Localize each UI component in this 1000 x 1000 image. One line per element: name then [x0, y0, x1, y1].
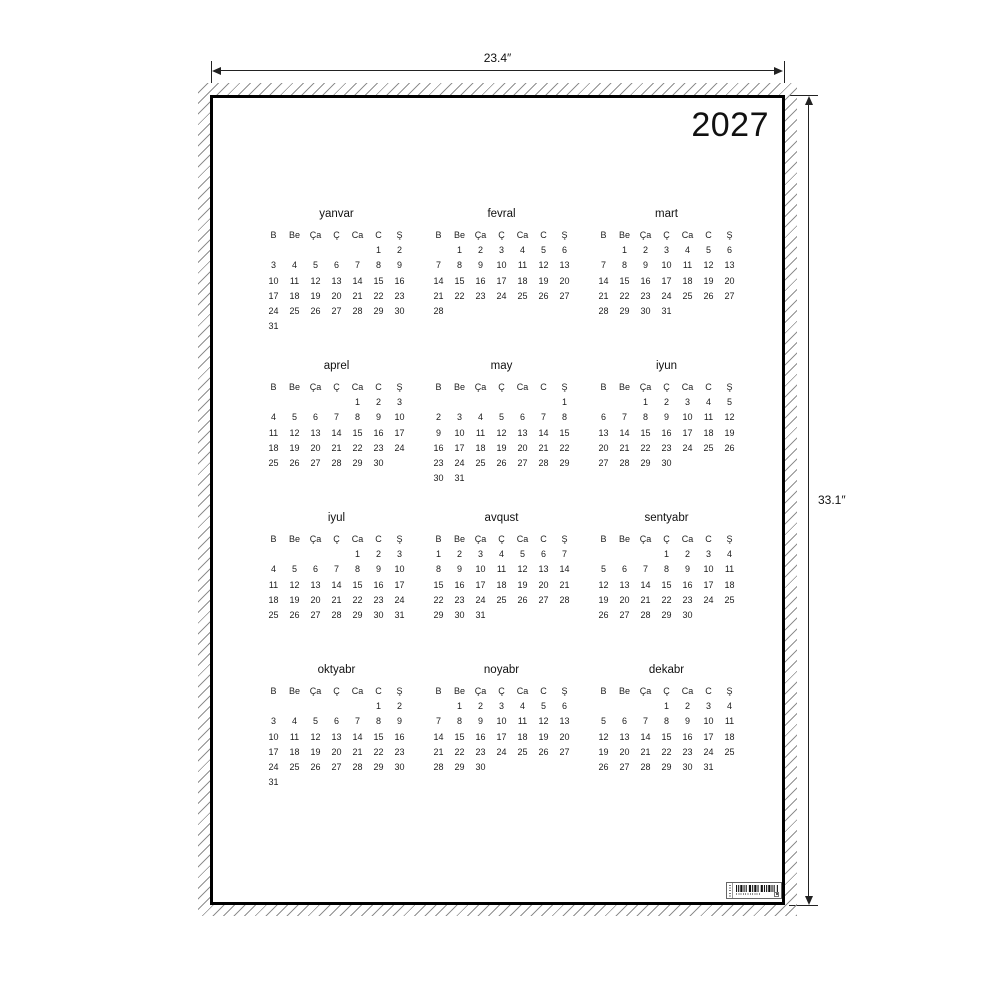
day-cell: 4 — [491, 547, 512, 562]
day-cell: 18 — [284, 289, 305, 304]
month-title: aprel — [263, 360, 410, 373]
month-grid: BBeÇaÇCaCŞ123456789101112131415161718192… — [263, 380, 410, 471]
day-cell: 24 — [389, 441, 410, 456]
day-cell: 20 — [305, 593, 326, 608]
day-cell: 17 — [470, 578, 491, 593]
day-cell: 10 — [698, 562, 719, 577]
day-cell: 27 — [614, 608, 635, 623]
day-cell: 10 — [491, 714, 512, 729]
day-cell: 12 — [305, 730, 326, 745]
day-cell: 12 — [593, 578, 614, 593]
month-title: yanvar — [263, 208, 410, 221]
day-cell: 16 — [635, 274, 656, 289]
day-cell: 29 — [656, 608, 677, 623]
day-cell: 20 — [326, 289, 347, 304]
day-cell: 1 — [635, 395, 656, 410]
day-cell: 3 — [449, 410, 470, 425]
day-cell: 28 — [614, 456, 635, 471]
empty-cell — [428, 699, 449, 714]
day-cell: 24 — [491, 289, 512, 304]
day-cell: 20 — [614, 745, 635, 760]
weekday-label: Ş — [719, 228, 740, 243]
day-cell: 23 — [470, 745, 491, 760]
weekday-label: Be — [614, 228, 635, 243]
day-cell: 7 — [533, 410, 554, 425]
day-cell: 4 — [263, 410, 284, 425]
day-cell: 24 — [677, 441, 698, 456]
day-cell: 12 — [719, 410, 740, 425]
arrow-right-icon — [774, 67, 783, 75]
day-cell: 26 — [698, 289, 719, 304]
day-cell: 21 — [347, 745, 368, 760]
weekday-label: Ca — [347, 380, 368, 395]
month-grid: BBeÇaÇCaCŞ123456789101112131415161718192… — [428, 380, 575, 486]
weekday-label: Ca — [347, 532, 368, 547]
day-cell: 19 — [593, 593, 614, 608]
day-cell: 6 — [554, 699, 575, 714]
day-cell: 17 — [389, 578, 410, 593]
day-cell: 28 — [635, 760, 656, 775]
day-cell: 17 — [698, 578, 719, 593]
weekday-label: C — [368, 380, 389, 395]
weekday-label: Ca — [512, 684, 533, 699]
empty-cell — [347, 699, 368, 714]
day-cell: 14 — [635, 730, 656, 745]
weekday-label: Ç — [326, 228, 347, 243]
day-cell: 24 — [263, 760, 284, 775]
empty-cell — [512, 471, 533, 486]
day-cell: 29 — [614, 304, 635, 319]
day-cell: 9 — [677, 562, 698, 577]
day-cell: 8 — [449, 258, 470, 273]
weekday-label: B — [263, 532, 284, 547]
barcode-bottom-row — [736, 892, 779, 898]
day-cell: 25 — [512, 745, 533, 760]
empty-cell — [719, 608, 740, 623]
month-title: avqust — [428, 512, 575, 525]
empty-cell — [554, 608, 575, 623]
month-avqust: avqustBBeÇaÇCaCŞ123456789101112131415161… — [428, 512, 575, 664]
day-cell: 8 — [635, 410, 656, 425]
day-cell: 8 — [347, 562, 368, 577]
day-cell: 25 — [719, 593, 740, 608]
day-cell: 15 — [428, 578, 449, 593]
weekday-label: Be — [449, 228, 470, 243]
day-cell: 29 — [368, 304, 389, 319]
day-cell: 12 — [533, 258, 554, 273]
day-cell: 21 — [347, 289, 368, 304]
day-cell: 9 — [389, 258, 410, 273]
weekday-label: Ça — [470, 532, 491, 547]
day-cell: 6 — [593, 410, 614, 425]
day-cell: 28 — [326, 608, 347, 623]
day-cell: 23 — [656, 441, 677, 456]
day-cell: 2 — [677, 547, 698, 562]
day-cell: 18 — [470, 441, 491, 456]
day-cell: 1 — [368, 243, 389, 258]
month-title: mart — [593, 208, 740, 221]
day-cell: 5 — [305, 714, 326, 729]
day-cell: 29 — [656, 760, 677, 775]
day-cell: 7 — [593, 258, 614, 273]
day-cell: 26 — [533, 745, 554, 760]
weekday-label: Ca — [347, 228, 368, 243]
day-cell: 11 — [677, 258, 698, 273]
day-cell: 27 — [326, 304, 347, 319]
day-cell: 30 — [389, 760, 410, 775]
empty-cell — [533, 471, 554, 486]
empty-cell — [533, 395, 554, 410]
month-title: sentyabr — [593, 512, 740, 525]
empty-cell — [533, 760, 554, 775]
day-cell: 1 — [449, 699, 470, 714]
day-cell: 14 — [347, 274, 368, 289]
empty-cell — [593, 395, 614, 410]
empty-cell — [719, 304, 740, 319]
day-cell: 7 — [554, 547, 575, 562]
label-check-box — [774, 892, 779, 897]
empty-cell — [263, 699, 284, 714]
weekday-label: Ca — [512, 228, 533, 243]
day-cell: 13 — [554, 714, 575, 729]
day-cell: 27 — [305, 608, 326, 623]
day-cell: 14 — [614, 426, 635, 441]
weekday-label: Be — [449, 684, 470, 699]
height-dimension-label: 33.1″ — [818, 493, 846, 507]
day-cell: 10 — [449, 426, 470, 441]
day-cell: 10 — [389, 562, 410, 577]
empty-cell — [593, 547, 614, 562]
day-cell: 28 — [533, 456, 554, 471]
empty-cell — [614, 547, 635, 562]
day-cell: 1 — [428, 547, 449, 562]
day-cell: 6 — [554, 243, 575, 258]
day-cell: 3 — [263, 258, 284, 273]
weekday-label: Ş — [719, 380, 740, 395]
day-cell: 19 — [512, 578, 533, 593]
day-cell: 31 — [263, 319, 284, 334]
day-cell: 24 — [389, 593, 410, 608]
day-cell: 19 — [284, 441, 305, 456]
day-cell: 25 — [284, 760, 305, 775]
day-cell: 5 — [698, 243, 719, 258]
day-cell: 27 — [719, 289, 740, 304]
day-cell: 15 — [347, 578, 368, 593]
day-cell: 26 — [491, 456, 512, 471]
weekday-label: B — [428, 228, 449, 243]
empty-cell — [263, 547, 284, 562]
day-cell: 19 — [719, 426, 740, 441]
weekday-label: Ça — [470, 228, 491, 243]
empty-cell — [512, 304, 533, 319]
empty-cell — [305, 699, 326, 714]
empty-cell — [284, 395, 305, 410]
day-cell: 20 — [305, 441, 326, 456]
day-cell: 14 — [533, 426, 554, 441]
day-cell: 13 — [533, 562, 554, 577]
empty-cell — [698, 304, 719, 319]
day-cell: 25 — [263, 456, 284, 471]
day-cell: 10 — [698, 714, 719, 729]
weekday-label: Be — [284, 228, 305, 243]
day-cell: 18 — [491, 578, 512, 593]
day-cell: 19 — [305, 745, 326, 760]
empty-cell — [491, 760, 512, 775]
empty-cell — [428, 395, 449, 410]
day-cell: 11 — [491, 562, 512, 577]
day-cell: 4 — [719, 547, 740, 562]
day-cell: 8 — [368, 258, 389, 273]
day-cell: 19 — [284, 593, 305, 608]
empty-cell — [554, 760, 575, 775]
day-cell: 25 — [470, 456, 491, 471]
weekday-label: Ça — [635, 684, 656, 699]
month-grid: BBeÇaÇCaCŞ123456789101112131415161718192… — [263, 532, 410, 623]
weekday-label: C — [698, 532, 719, 547]
day-cell: 23 — [677, 593, 698, 608]
weekday-label: Ç — [491, 380, 512, 395]
day-cell: 13 — [554, 258, 575, 273]
weekday-label: Ça — [635, 228, 656, 243]
day-cell: 31 — [389, 608, 410, 623]
day-cell: 1 — [614, 243, 635, 258]
empty-cell — [470, 471, 491, 486]
day-cell: 23 — [449, 593, 470, 608]
width-dimension-label: 23.4″ — [212, 51, 783, 65]
day-cell: 20 — [326, 745, 347, 760]
empty-cell — [284, 243, 305, 258]
barcode-main — [733, 883, 781, 898]
day-cell: 17 — [491, 274, 512, 289]
empty-cell — [263, 395, 284, 410]
day-cell: 10 — [656, 258, 677, 273]
day-cell: 11 — [470, 426, 491, 441]
month-dekabr: dekabrBBeÇaÇCaCŞ123456789101112131415161… — [593, 664, 740, 816]
day-cell: 2 — [368, 395, 389, 410]
day-cell: 24 — [470, 593, 491, 608]
day-cell: 3 — [698, 699, 719, 714]
day-cell: 23 — [428, 456, 449, 471]
day-cell: 17 — [491, 730, 512, 745]
day-cell: 21 — [326, 441, 347, 456]
day-cell: 22 — [656, 745, 677, 760]
day-cell: 11 — [284, 730, 305, 745]
day-cell: 30 — [677, 760, 698, 775]
weekday-label: C — [533, 228, 554, 243]
day-cell: 16 — [449, 578, 470, 593]
weekday-label: Be — [614, 532, 635, 547]
day-cell: 7 — [635, 562, 656, 577]
day-cell: 10 — [389, 410, 410, 425]
month-mart: martBBeÇaÇCaCŞ12345678910111213141516171… — [593, 208, 740, 360]
day-cell: 28 — [326, 456, 347, 471]
empty-cell — [305, 395, 326, 410]
day-cell: 10 — [491, 258, 512, 273]
empty-cell — [305, 319, 326, 334]
month-iyul: iyulBBeÇaÇCaCŞ12345678910111213141516171… — [263, 512, 410, 664]
day-cell: 15 — [449, 274, 470, 289]
day-cell: 26 — [719, 441, 740, 456]
day-cell: 26 — [305, 760, 326, 775]
month-title: iyun — [593, 360, 740, 373]
month-oktyabr: oktyabrBBeÇaÇCaCŞ12345678910111213141516… — [263, 664, 410, 816]
day-cell: 18 — [512, 730, 533, 745]
day-cell: 11 — [719, 562, 740, 577]
day-cell: 4 — [284, 714, 305, 729]
day-cell: 6 — [614, 714, 635, 729]
day-cell: 10 — [263, 274, 284, 289]
day-cell: 16 — [677, 730, 698, 745]
day-cell: 3 — [470, 547, 491, 562]
day-cell: 3 — [491, 699, 512, 714]
day-cell: 23 — [470, 289, 491, 304]
day-cell: 12 — [512, 562, 533, 577]
empty-cell — [698, 608, 719, 623]
day-cell: 2 — [635, 243, 656, 258]
day-cell: 15 — [449, 730, 470, 745]
empty-cell — [326, 319, 347, 334]
day-cell: 30 — [389, 304, 410, 319]
day-cell: 6 — [533, 547, 554, 562]
day-cell: 28 — [635, 608, 656, 623]
day-cell: 19 — [698, 274, 719, 289]
day-cell: 1 — [368, 699, 389, 714]
weekday-label: Ş — [719, 532, 740, 547]
day-cell: 11 — [512, 258, 533, 273]
day-cell: 12 — [593, 730, 614, 745]
empty-cell — [719, 760, 740, 775]
day-cell: 7 — [428, 714, 449, 729]
weekday-label: C — [368, 228, 389, 243]
arrow-left-icon — [212, 67, 221, 75]
day-cell: 5 — [512, 547, 533, 562]
day-cell: 17 — [677, 426, 698, 441]
month-title: dekabr — [593, 664, 740, 677]
day-cell: 14 — [593, 274, 614, 289]
empty-cell — [284, 319, 305, 334]
weekday-label: Ç — [656, 228, 677, 243]
empty-cell — [389, 319, 410, 334]
day-cell: 13 — [326, 274, 347, 289]
weekday-label: C — [533, 532, 554, 547]
empty-cell — [449, 304, 470, 319]
day-cell: 15 — [656, 578, 677, 593]
day-cell: 17 — [389, 426, 410, 441]
day-cell: 22 — [368, 745, 389, 760]
day-cell: 19 — [491, 441, 512, 456]
day-cell: 12 — [284, 578, 305, 593]
day-cell: 6 — [305, 410, 326, 425]
day-cell: 16 — [656, 426, 677, 441]
day-cell: 2 — [470, 243, 491, 258]
day-cell: 22 — [635, 441, 656, 456]
day-cell: 15 — [635, 426, 656, 441]
day-cell: 20 — [533, 578, 554, 593]
weekday-label: Ça — [470, 380, 491, 395]
day-cell: 9 — [368, 410, 389, 425]
weekday-label: B — [263, 228, 284, 243]
weekday-label: Ş — [719, 684, 740, 699]
empty-cell — [677, 304, 698, 319]
day-cell: 30 — [428, 471, 449, 486]
day-cell: 19 — [305, 289, 326, 304]
day-cell: 18 — [512, 274, 533, 289]
weekday-label: Ç — [326, 684, 347, 699]
day-cell: 22 — [347, 593, 368, 608]
day-cell: 3 — [677, 395, 698, 410]
day-cell: 22 — [347, 441, 368, 456]
day-cell: 8 — [656, 562, 677, 577]
month-grid: BBeÇaÇCaCŞ123456789101112131415161718192… — [428, 532, 575, 623]
day-cell: 12 — [698, 258, 719, 273]
empty-cell — [698, 456, 719, 471]
day-cell: 22 — [449, 745, 470, 760]
day-cell: 27 — [305, 456, 326, 471]
weekday-label: B — [593, 684, 614, 699]
day-cell: 20 — [719, 274, 740, 289]
day-cell: 6 — [305, 562, 326, 577]
day-cell: 2 — [428, 410, 449, 425]
day-cell: 28 — [428, 760, 449, 775]
empty-cell — [263, 243, 284, 258]
weekday-label: C — [368, 684, 389, 699]
empty-cell — [347, 319, 368, 334]
empty-cell — [326, 699, 347, 714]
weekday-label: Ş — [389, 684, 410, 699]
month-iyun: iyunBBeÇaÇCaCŞ12345678910111213141516171… — [593, 360, 740, 512]
weekday-label: C — [533, 380, 554, 395]
day-cell: 22 — [656, 593, 677, 608]
day-cell: 30 — [449, 608, 470, 623]
weekday-label: C — [698, 380, 719, 395]
weekday-label: Ç — [491, 228, 512, 243]
day-cell: 13 — [305, 426, 326, 441]
day-cell: 24 — [656, 289, 677, 304]
day-cell: 20 — [593, 441, 614, 456]
empty-cell — [554, 471, 575, 486]
day-cell: 17 — [698, 730, 719, 745]
day-cell: 10 — [677, 410, 698, 425]
day-cell: 27 — [533, 593, 554, 608]
day-cell: 11 — [719, 714, 740, 729]
day-cell: 9 — [449, 562, 470, 577]
day-cell: 1 — [449, 243, 470, 258]
barcode-label — [726, 882, 782, 899]
day-cell: 8 — [554, 410, 575, 425]
weekday-label: Ca — [677, 380, 698, 395]
day-cell: 4 — [470, 410, 491, 425]
day-cell: 10 — [470, 562, 491, 577]
day-cell: 6 — [326, 714, 347, 729]
day-cell: 16 — [389, 274, 410, 289]
empty-cell — [284, 547, 305, 562]
empty-cell — [389, 456, 410, 471]
day-cell: 22 — [554, 441, 575, 456]
day-cell: 26 — [284, 608, 305, 623]
day-cell: 29 — [368, 760, 389, 775]
day-cell: 7 — [326, 410, 347, 425]
day-cell: 20 — [512, 441, 533, 456]
empty-cell — [347, 243, 368, 258]
weekday-label: Ç — [656, 684, 677, 699]
day-cell: 8 — [368, 714, 389, 729]
weekday-label: Ca — [677, 684, 698, 699]
day-cell: 18 — [263, 441, 284, 456]
day-cell: 19 — [533, 730, 554, 745]
day-cell: 30 — [677, 608, 698, 623]
day-cell: 23 — [368, 593, 389, 608]
day-cell: 9 — [470, 714, 491, 729]
